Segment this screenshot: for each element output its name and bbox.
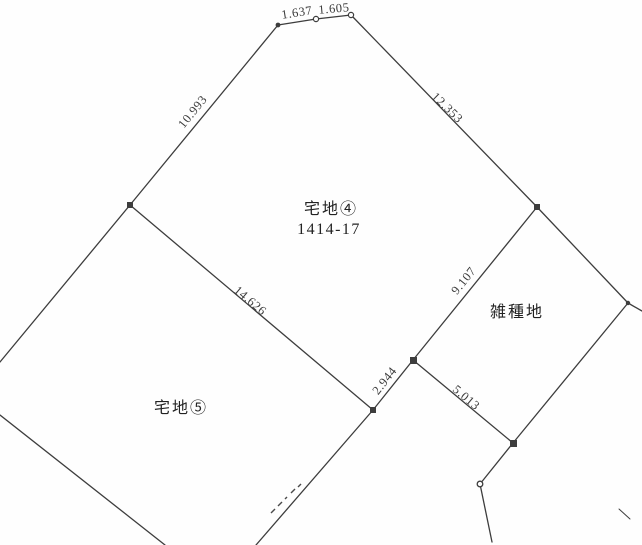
parcel-label-takuchi5: 宅地⑤ xyxy=(154,394,208,418)
boundary-line-parcel4-misc xyxy=(413,207,537,360)
parcel-label-zasshuchi: 雑種地 xyxy=(490,298,544,322)
stray-line-fragment xyxy=(619,509,630,519)
survey-point-marker xyxy=(410,357,417,364)
survey-point-marker xyxy=(313,16,318,21)
measurement-label: 1.605 xyxy=(318,0,350,18)
cadastral-survey-drawing: 1.637 1.605 10.993 12.353 14.626 9.107 2… xyxy=(0,0,642,545)
survey-point-marker xyxy=(127,202,133,208)
boundary-geometry xyxy=(0,0,642,545)
survey-point-marker xyxy=(534,204,540,210)
boundary-line-northwest xyxy=(130,25,278,205)
survey-point-marker xyxy=(276,23,281,28)
boundary-line-west-exit xyxy=(0,205,130,362)
boundary-line-southeast-upper xyxy=(480,443,513,484)
boundary-line-southeast-lower xyxy=(480,484,492,542)
survey-point-marker xyxy=(626,301,630,305)
boundary-line-east-exit xyxy=(628,303,642,311)
survey-point-marker xyxy=(510,440,517,447)
boundary-line-southwest xyxy=(0,415,165,545)
parcel-label-takuchi4: 宅地④ xyxy=(304,195,358,219)
boundary-line-east-upper xyxy=(537,207,628,303)
parcel-number-1414-17: 1414-17 xyxy=(297,221,361,239)
survey-point-marker xyxy=(477,481,483,487)
survey-point-marker xyxy=(370,407,376,413)
boundary-line-south xyxy=(256,410,373,545)
boundary-line-east-lower xyxy=(513,303,628,443)
